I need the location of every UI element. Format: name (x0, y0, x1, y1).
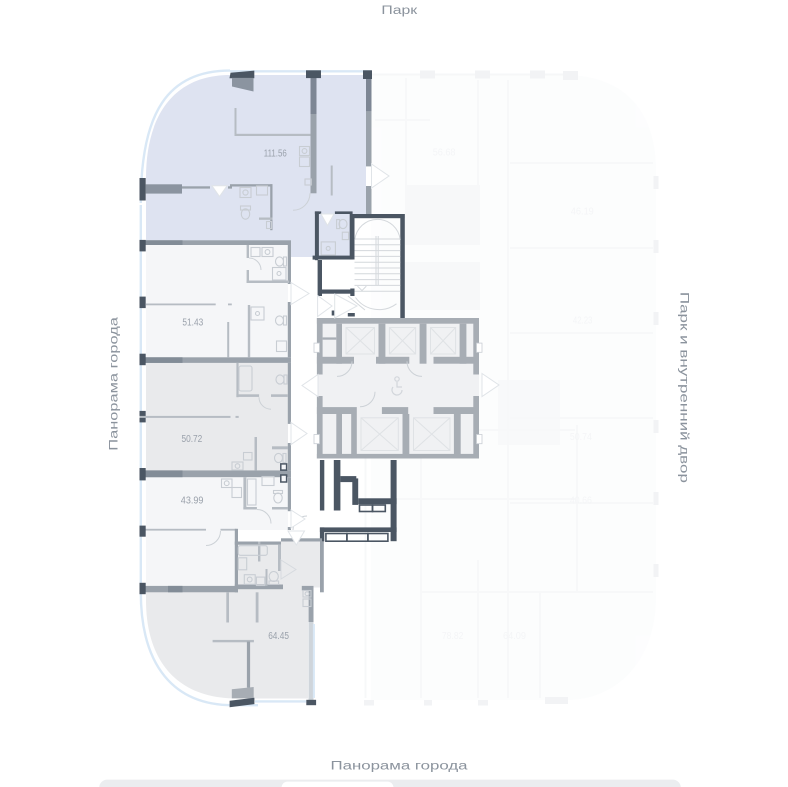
svg-text:50.74: 50.74 (570, 432, 592, 443)
svg-text:111.56: 111.56 (264, 148, 287, 159)
svg-text:Панорама города: Панорама города (109, 316, 121, 450)
svg-text:42.23: 42.23 (573, 316, 593, 327)
svg-text:56.68: 56.68 (433, 147, 456, 158)
svg-text:40.66: 40.66 (570, 496, 592, 507)
svg-text:Парк: Парк (381, 5, 418, 17)
svg-text:78.82: 78.82 (442, 631, 464, 642)
svg-text:Панорама города: Панорама города (331, 760, 469, 772)
svg-text:51.43: 51.43 (182, 318, 203, 329)
svg-text:64.09: 64.09 (503, 631, 526, 642)
svg-text:46.19: 46.19 (571, 207, 594, 218)
svg-text:43.99: 43.99 (181, 496, 204, 507)
svg-text:64.45: 64.45 (268, 631, 289, 642)
svg-text:Парк и внутренний двор: Парк и внутренний двор (678, 292, 690, 483)
svg-text:50.72: 50.72 (182, 434, 203, 445)
